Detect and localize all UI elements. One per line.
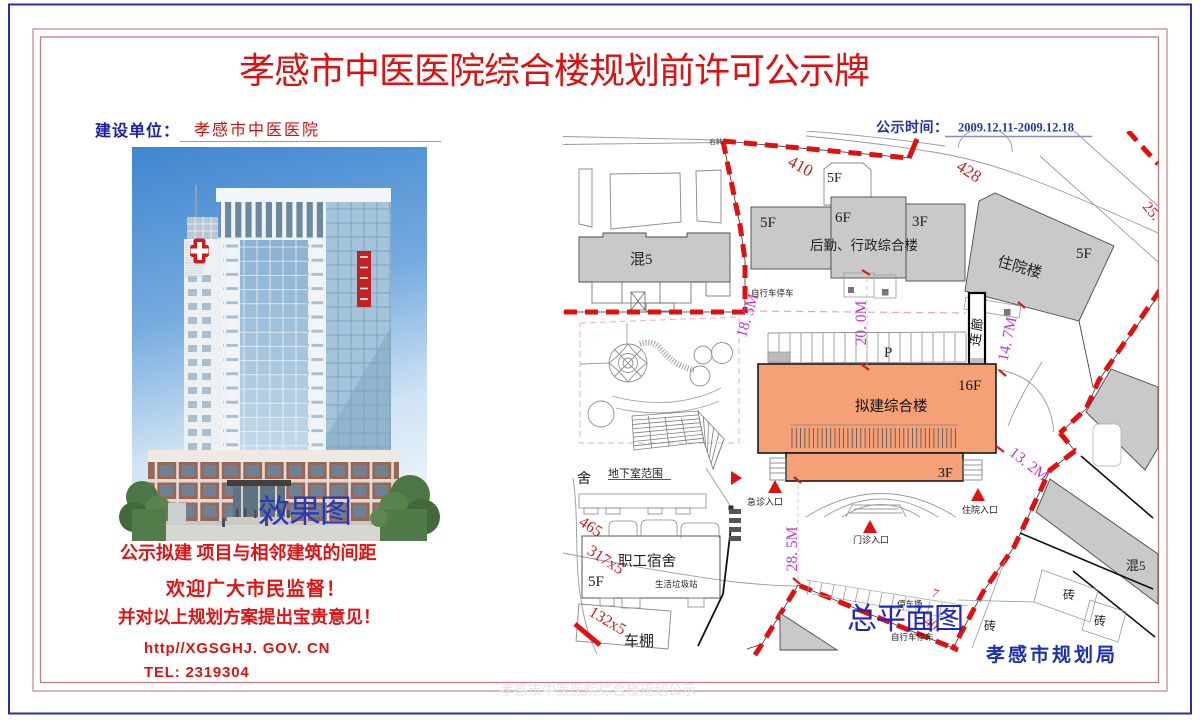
svg-text:16F: 16F <box>958 378 981 394</box>
svg-text:TEL: 2319304: TEL: 2319304 <box>144 664 250 681</box>
svg-text:舍: 舍 <box>577 471 591 487</box>
svg-text:效果图: 效果图 <box>258 493 351 529</box>
svg-text:2009.12.11-2009.12.18: 2009.12.11-2009.12.18 <box>958 121 1074 135</box>
svg-text:25.: 25. <box>1139 199 1163 224</box>
svg-text:混5: 混5 <box>630 251 653 268</box>
svg-text:410: 410 <box>785 152 816 181</box>
svg-text:5F: 5F <box>1076 246 1092 262</box>
svg-text:建设单位：: 建设单位： <box>95 121 180 140</box>
svg-text:132x5: 132x5 <box>586 604 629 639</box>
svg-text:5F: 5F <box>760 215 776 231</box>
svg-text:P: P <box>884 345 892 361</box>
svg-text:总平面图: 总平面图 <box>847 603 963 636</box>
svg-text:车棚: 车棚 <box>624 633 654 650</box>
svg-text:5F: 5F <box>827 171 842 186</box>
svg-text:14. 7M: 14. 7M <box>995 315 1021 363</box>
svg-text:13. 2M: 13. 2M <box>1006 444 1052 485</box>
svg-text:职工宿舍: 职工宿舍 <box>618 553 676 570</box>
svg-text:孝感市规划局: 孝感市规划局 <box>986 643 1118 666</box>
svg-text:28. 5M: 28. 5M <box>784 526 801 571</box>
svg-text:428: 428 <box>953 156 985 186</box>
svg-text:后勤、行政综合楼: 后勤、行政综合楼 <box>810 238 918 253</box>
svg-text:317x5: 317x5 <box>584 542 627 578</box>
svg-text:砖: 砖 <box>1063 587 1075 602</box>
svg-text:砖: 砖 <box>1094 613 1106 628</box>
svg-text:公示拟建 项目与相邻建筑的间距: 公示拟建 项目与相邻建筑的间距 <box>120 542 377 563</box>
svg-text:6F: 6F <box>835 210 851 226</box>
svg-text:5F: 5F <box>588 574 604 590</box>
svg-text:3F: 3F <box>912 214 928 230</box>
svg-text:20. 0M: 20. 0M <box>853 300 870 345</box>
svg-text:混5: 混5 <box>1126 558 1146 573</box>
svg-text:465: 465 <box>576 514 605 541</box>
svg-text:并对以上规划方案提出宝贵意见！: 并对以上规划方案提出宝贵意见！ <box>118 607 381 627</box>
svg-text:欢迎广大市民监督！: 欢迎广大市民监督！ <box>165 577 346 600</box>
svg-text:砖: 砖 <box>984 618 996 633</box>
svg-text:3F: 3F <box>938 466 953 481</box>
svg-text:18. 5M: 18. 5M <box>733 292 762 340</box>
svg-text:地下室范围: 地下室范围 <box>608 466 663 480</box>
svg-text:公示时间：: 公示时间： <box>876 119 949 135</box>
svg-text:孝感市中医医院综合楼规划公示: 孝感市中医医院综合楼规划公示 <box>500 682 696 698</box>
svg-text:拟建综合楼: 拟建综合楼 <box>855 398 928 415</box>
svg-text:http//XGSGHJ. GOV. CN: http//XGSGHJ. GOV. CN <box>144 640 330 657</box>
svg-text:生活垃圾站: 生活垃圾站 <box>655 579 698 589</box>
svg-text:门诊入口: 门诊入口 <box>853 534 889 545</box>
svg-text:孝感市中医医院: 孝感市中医医院 <box>194 121 320 139</box>
svg-text:7: 7 <box>930 586 940 601</box>
svg-text:住院入口: 住院入口 <box>962 504 998 515</box>
svg-text:右转: 右转 <box>709 137 723 146</box>
svg-text:急诊入口: 急诊入口 <box>747 496 783 507</box>
svg-text:孝感市中医医院综合楼规划前许可公示牌: 孝感市中医医院综合楼规划前许可公示牌 <box>239 51 869 91</box>
